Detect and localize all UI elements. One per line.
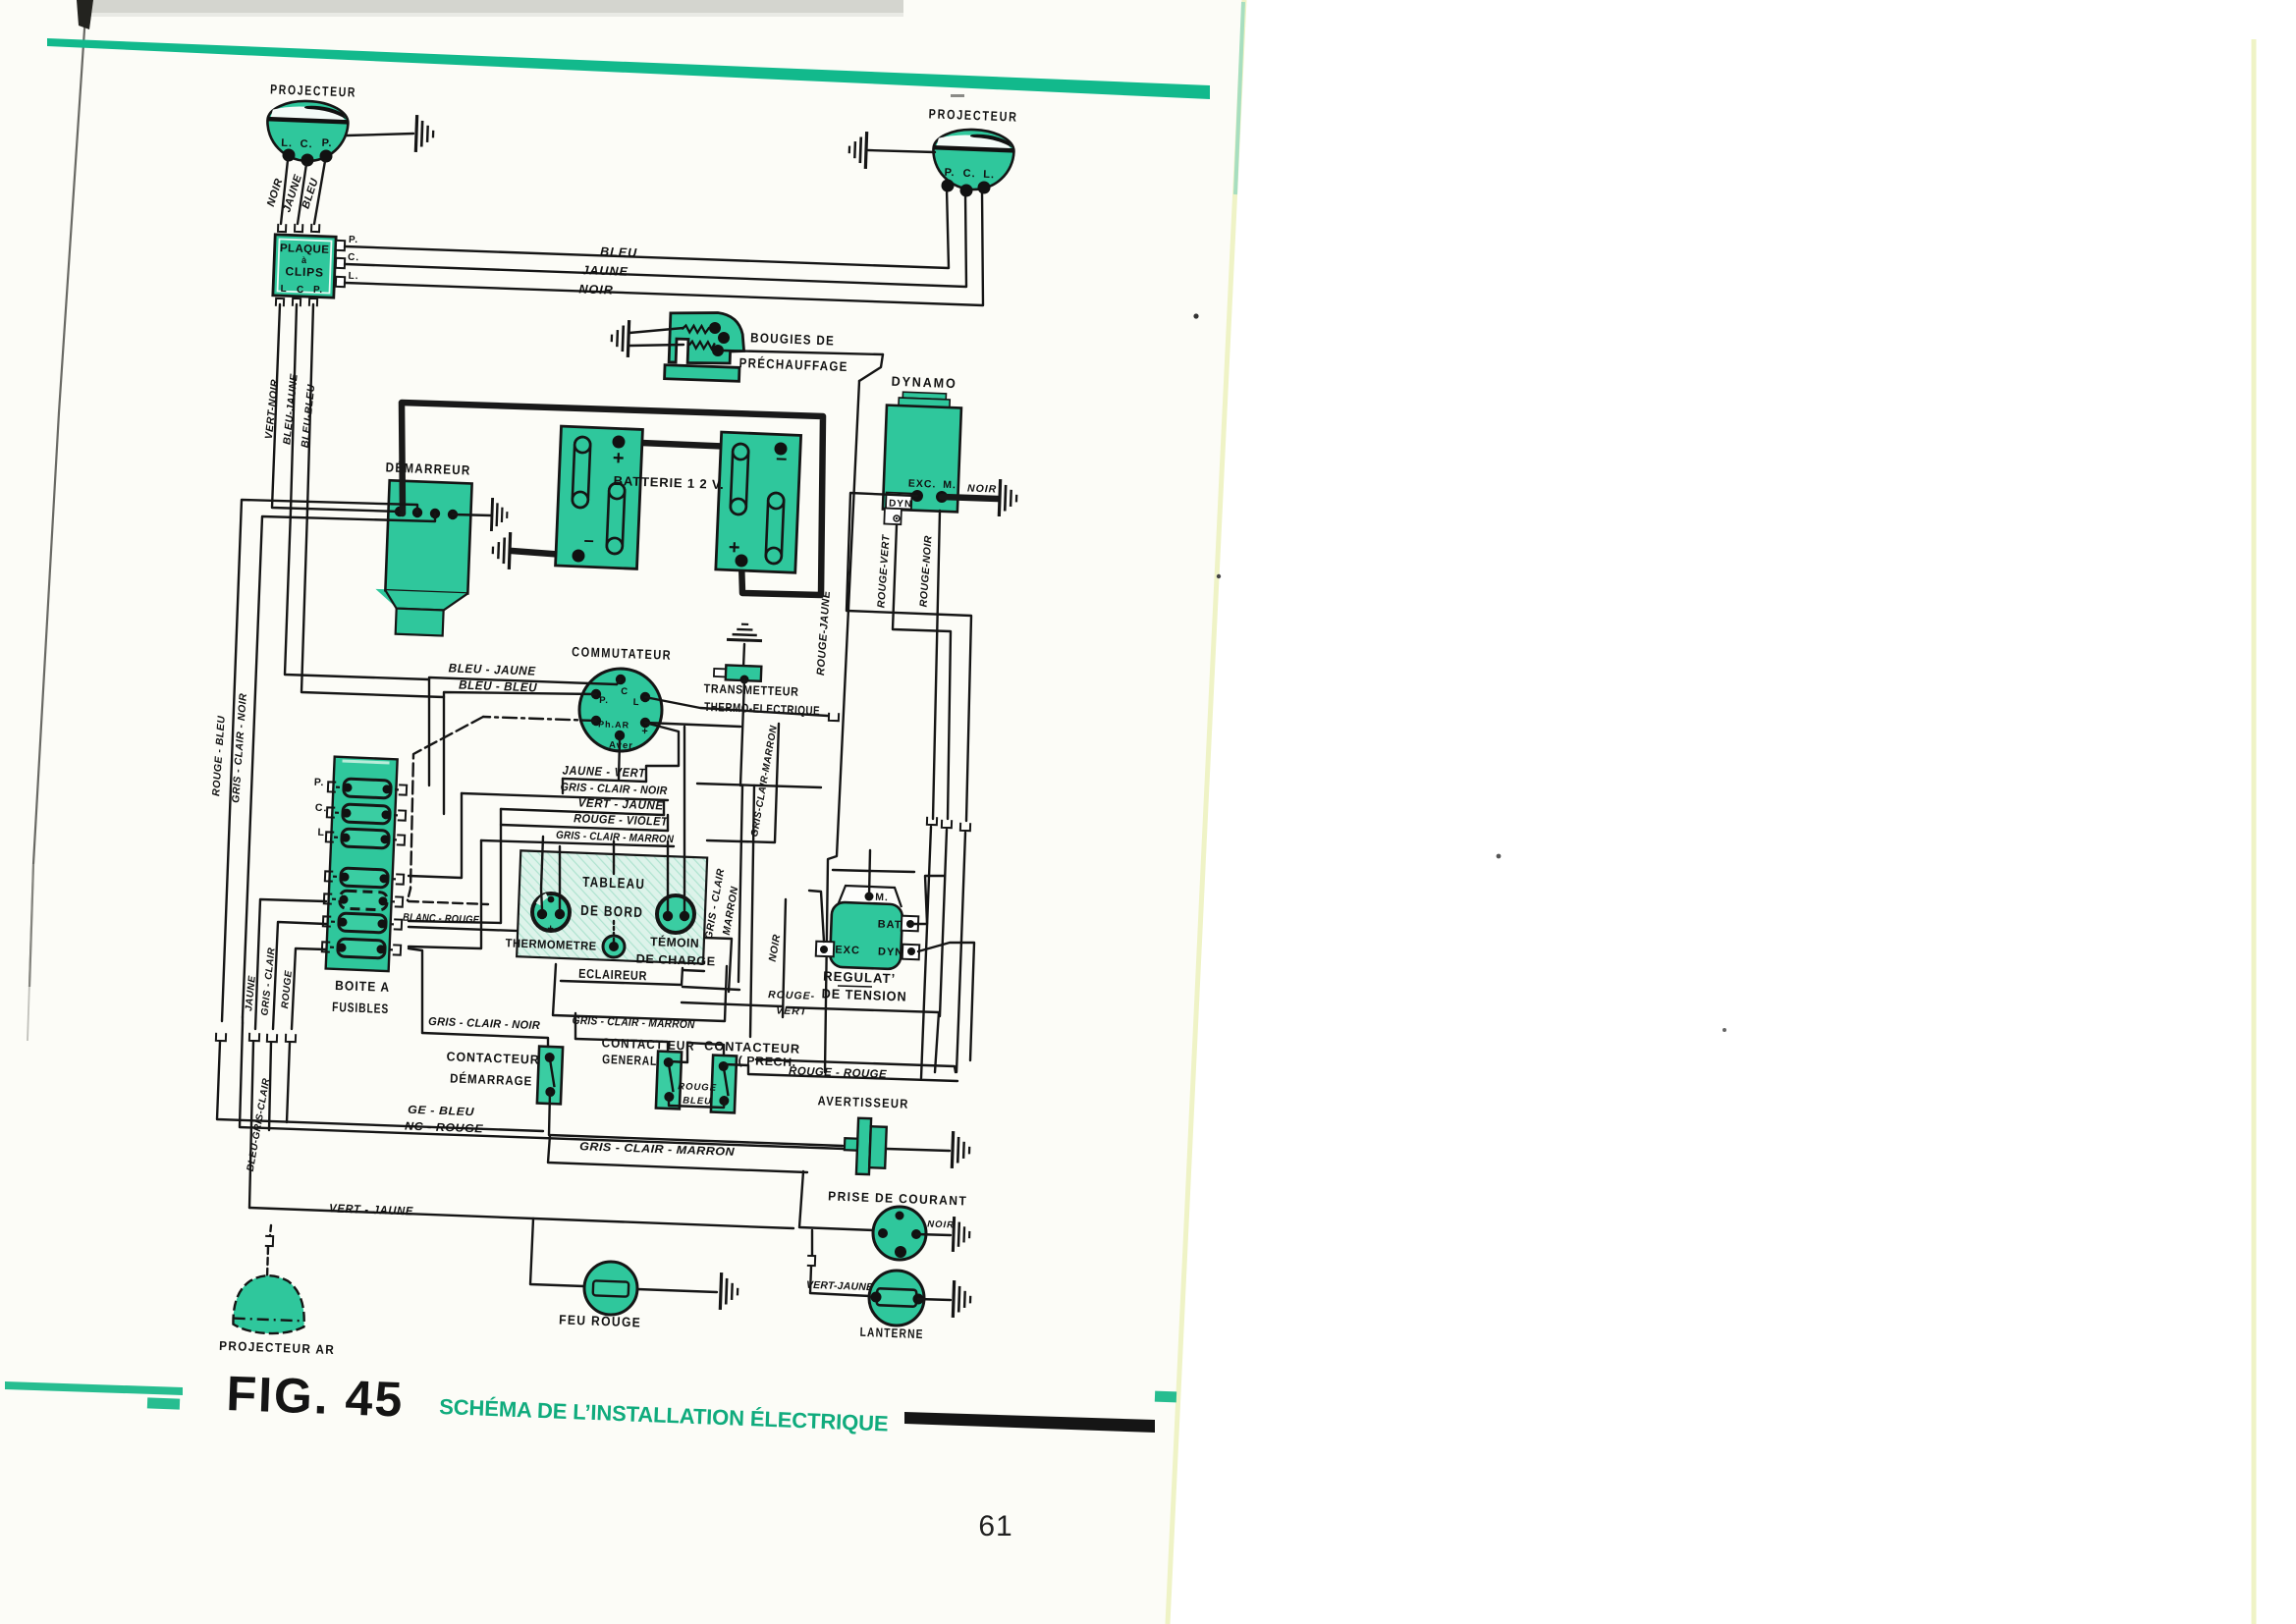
svg-text:BLEU - BLEU: BLEU - BLEU bbox=[459, 678, 538, 695]
svg-text:Aver.: Aver. bbox=[609, 739, 636, 751]
svg-text:Ph.AR: Ph.AR bbox=[598, 719, 629, 730]
svg-text:DYN: DYN bbox=[878, 947, 904, 959]
svg-text:ROUGE: ROUGE bbox=[678, 1081, 717, 1093]
svg-text:DÉMARRAGE: DÉMARRAGE bbox=[450, 1070, 532, 1088]
svg-text:+: + bbox=[728, 537, 740, 559]
svg-text:DÉMARREUR: DÉMARREUR bbox=[385, 460, 470, 477]
svg-text:L.: L. bbox=[348, 271, 358, 282]
svg-text:NOIR: NOIR bbox=[927, 1218, 955, 1230]
svg-text:+: + bbox=[612, 448, 625, 469]
svg-text:M.: M. bbox=[875, 892, 889, 903]
svg-text:NOIR: NOIR bbox=[967, 482, 998, 495]
svg-text:+: + bbox=[547, 923, 555, 935]
svg-text:LANTERNE: LANTERNE bbox=[859, 1325, 924, 1341]
svg-text:L: L bbox=[280, 284, 288, 295]
svg-text:DYNAMO: DYNAMO bbox=[891, 374, 957, 391]
svg-text:P.: P. bbox=[349, 235, 359, 245]
svg-text:–: – bbox=[583, 530, 595, 550]
svg-text:ECLAIREUR: ECLAIREUR bbox=[578, 966, 648, 984]
svg-text:PLAQUE: PLAQUE bbox=[280, 243, 330, 256]
svg-text:TÉMOIN: TÉMOIN bbox=[650, 934, 700, 950]
svg-text:GENERAL: GENERAL bbox=[602, 1052, 658, 1068]
svg-text:M.: M. bbox=[943, 479, 957, 491]
svg-text:61: 61 bbox=[978, 1510, 1012, 1543]
svg-text:NOIR: NOIR bbox=[578, 282, 614, 297]
svg-text:FIG. 45: FIG. 45 bbox=[226, 1366, 406, 1428]
svg-text:C.: C. bbox=[348, 252, 359, 263]
svg-text:P.: P. bbox=[321, 137, 332, 149]
svg-text:C: C bbox=[621, 686, 629, 697]
svg-text:BLEU: BLEU bbox=[600, 244, 638, 259]
svg-text:L.: L. bbox=[281, 137, 293, 149]
svg-text:P.: P. bbox=[944, 167, 955, 179]
svg-text:P.: P. bbox=[599, 695, 609, 706]
svg-text:REGULAT’: REGULAT’ bbox=[823, 969, 896, 987]
svg-text:JAUNE: JAUNE bbox=[581, 263, 629, 279]
svg-text:DYN: DYN bbox=[889, 499, 913, 511]
svg-text:C: C bbox=[297, 285, 305, 296]
svg-text:CLIPS: CLIPS bbox=[285, 264, 324, 279]
svg-text:DE CHARGE: DE CHARGE bbox=[635, 952, 715, 969]
svg-text:L: L bbox=[632, 697, 639, 708]
svg-text:BOITE A: BOITE A bbox=[335, 978, 391, 995]
svg-text:DE BORD: DE BORD bbox=[580, 903, 644, 921]
svg-text:L.: L. bbox=[983, 169, 995, 181]
svg-text:FUSIBLES: FUSIBLES bbox=[332, 1000, 390, 1016]
svg-text:TABLEAU: TABLEAU bbox=[582, 875, 646, 893]
svg-text:–: – bbox=[776, 448, 789, 469]
svg-text:BAT: BAT bbox=[877, 919, 902, 932]
svg-text:+: + bbox=[641, 726, 649, 737]
svg-text:ROUGE-: ROUGE- bbox=[768, 989, 815, 1002]
svg-text:C.: C. bbox=[300, 138, 312, 150]
svg-text:VERT-JAUNE: VERT-JAUNE bbox=[806, 1279, 875, 1294]
svg-text:FEU ROUGE: FEU ROUGE bbox=[559, 1312, 641, 1329]
svg-text:BOUGIES DE: BOUGIES DE bbox=[750, 330, 835, 348]
svg-text:DE TENSION: DE TENSION bbox=[821, 986, 906, 1003]
svg-text:GE - BLEU: GE - BLEU bbox=[408, 1105, 475, 1118]
svg-text:EXC.: EXC. bbox=[908, 477, 937, 490]
svg-text:C.: C. bbox=[962, 168, 975, 180]
svg-text:EXC: EXC bbox=[835, 945, 860, 957]
svg-text:P.: P. bbox=[314, 777, 325, 788]
svg-text:L.: L. bbox=[317, 827, 329, 839]
svg-text:à: à bbox=[301, 255, 307, 265]
svg-text:C.: C. bbox=[315, 802, 328, 814]
svg-text:P.: P. bbox=[313, 285, 324, 296]
